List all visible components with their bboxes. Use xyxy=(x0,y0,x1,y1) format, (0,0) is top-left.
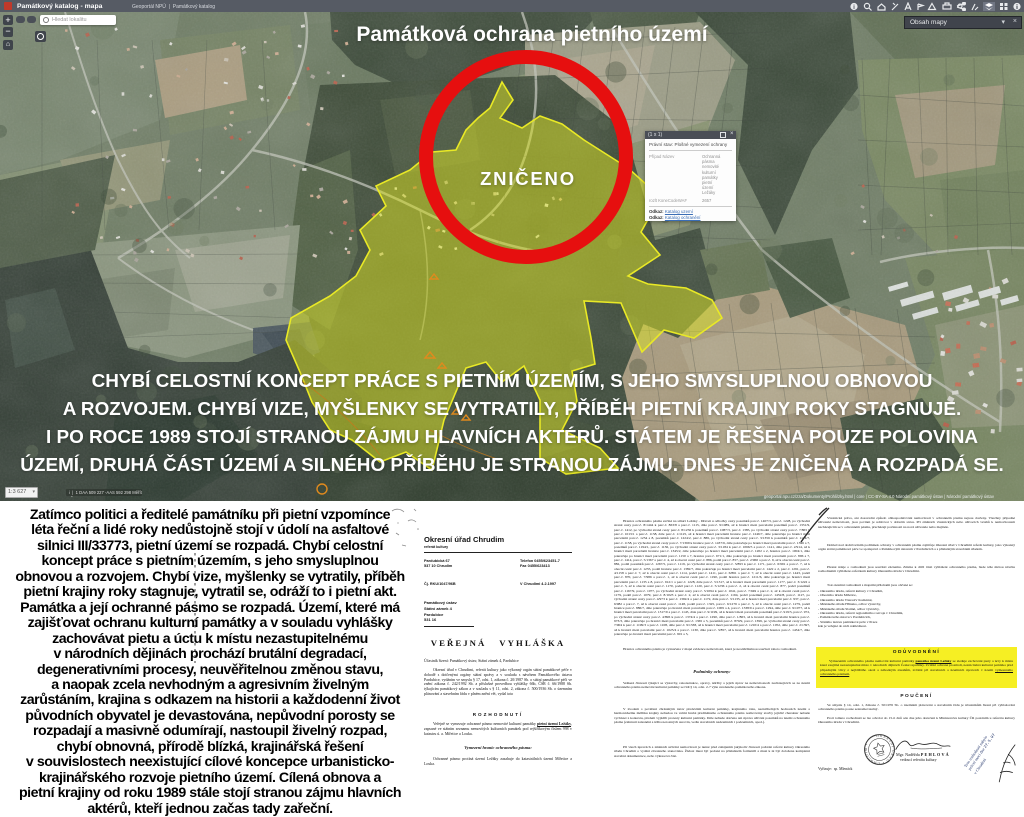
svg-text:OKRESNÍ ÚŘAD • CHRUDIM •: OKRESNÍ ÚŘAD • CHRUDIM • xyxy=(862,732,897,767)
svg-text:i: i xyxy=(853,4,855,11)
